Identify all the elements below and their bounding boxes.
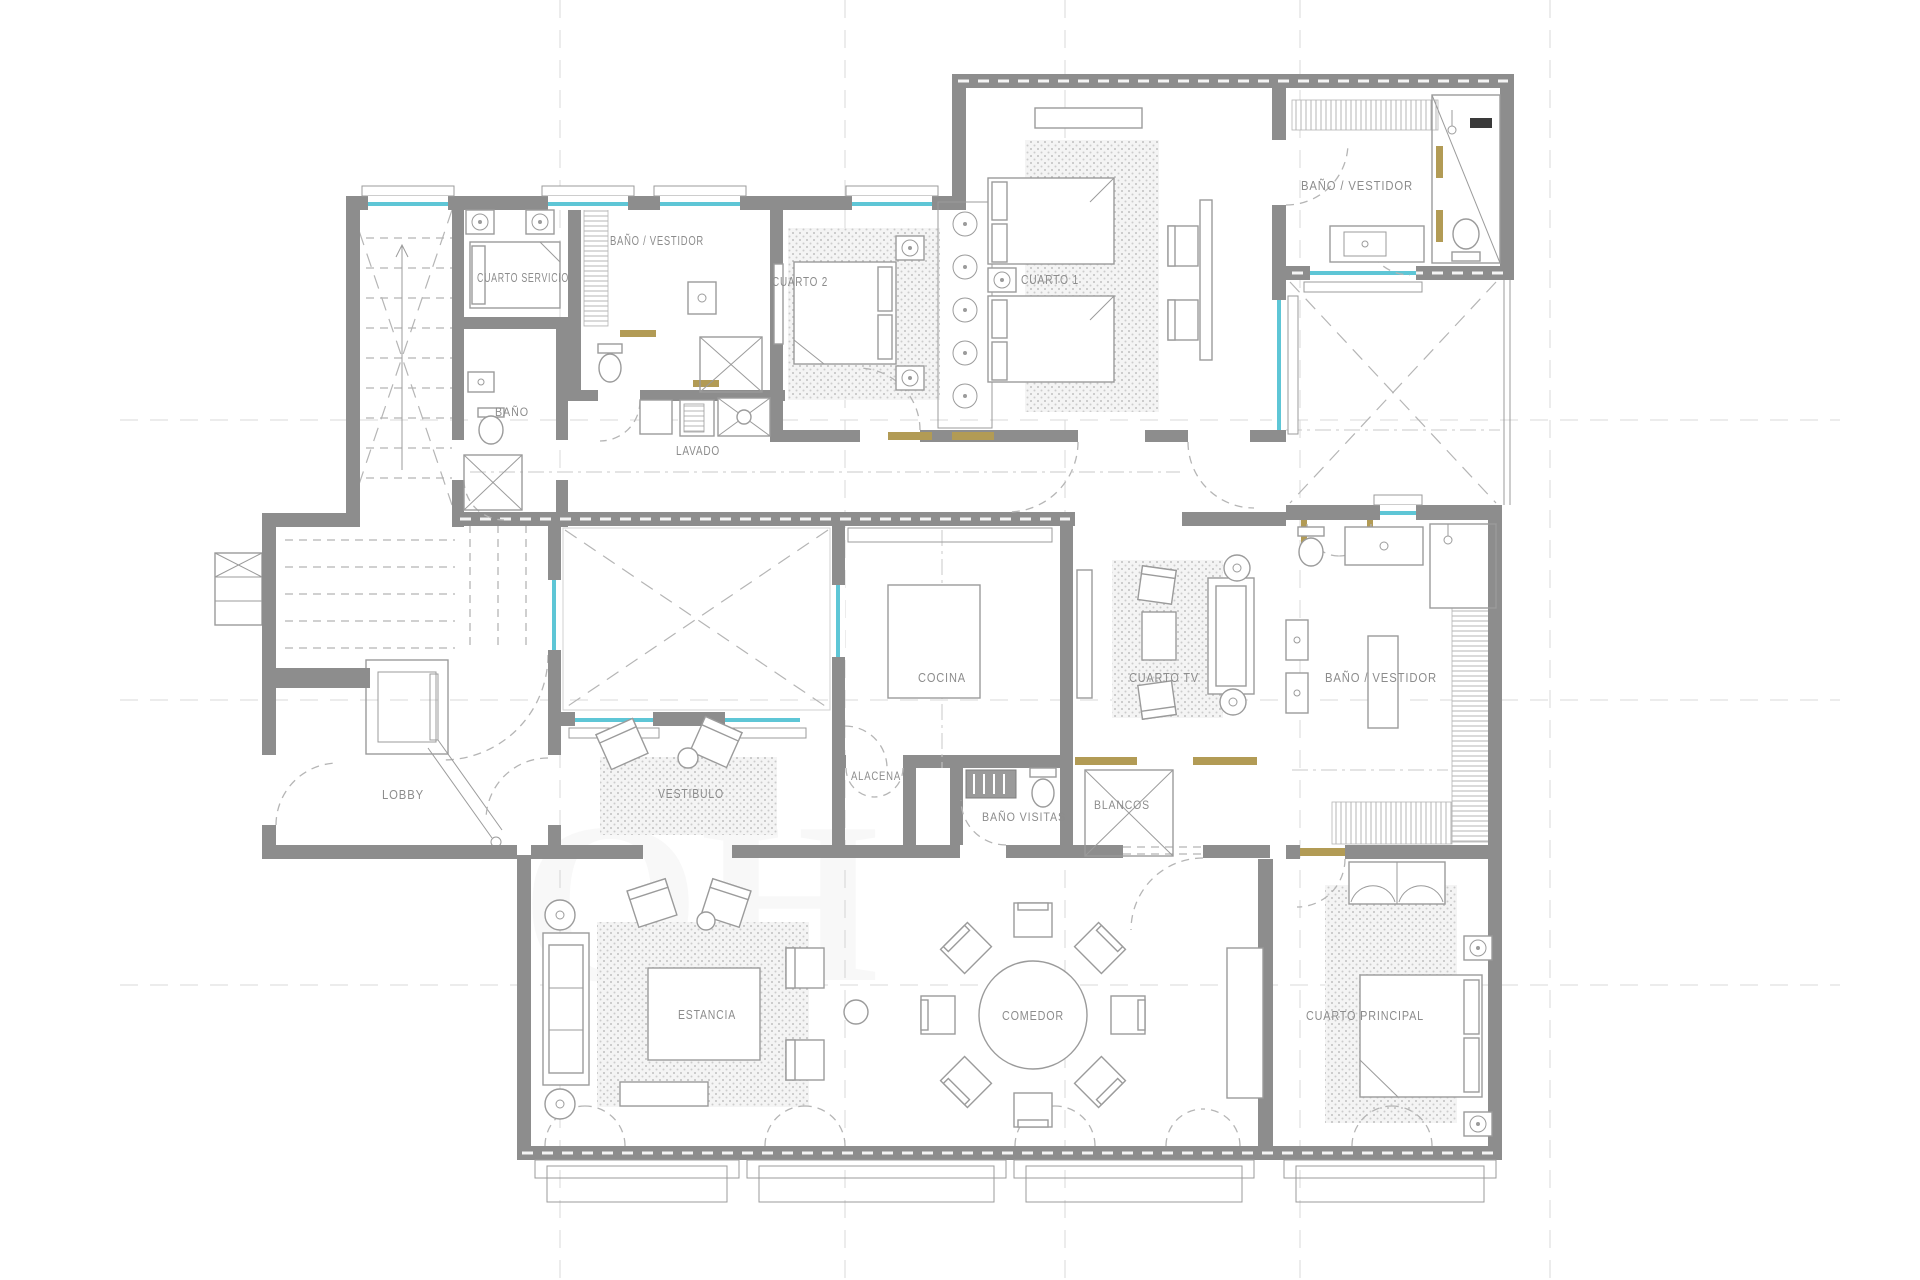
room-label-bano-visitas: BAÑO VISITAS: [982, 810, 1066, 824]
window: [846, 186, 938, 210]
nightstand-icon: [466, 210, 494, 234]
closet-hatch: [1332, 802, 1452, 844]
washstand-icon: [966, 770, 1016, 798]
sink-icon: [1286, 620, 1308, 660]
closet-hatch: [1292, 100, 1438, 130]
kitchen-counter: [848, 528, 1052, 542]
nightstand-icon: [988, 268, 1016, 292]
lightwell-cross: [563, 528, 830, 710]
window: [654, 186, 746, 210]
room-label-cuarto-1: CUARTO 1: [1021, 272, 1079, 287]
armchair-icon: [1168, 300, 1198, 340]
elevator-icon: [366, 660, 448, 754]
vanity-icon: [1345, 527, 1423, 565]
shower-icon: [1430, 524, 1496, 608]
console-icon: [1200, 200, 1212, 360]
floor-plan: OH UR: [0, 0, 1920, 1280]
credenza-icon: [1035, 108, 1142, 128]
window: [1374, 495, 1422, 520]
nightstand-icon: [1464, 936, 1492, 960]
toilet-icon: [1298, 527, 1324, 566]
terrace-steps: [535, 1160, 1496, 1202]
tv-console-icon: [1077, 570, 1092, 698]
room-label-bano-vestidor-right: BAÑO / VESTIDOR: [1325, 670, 1437, 685]
room-label-estancia: ESTANCIA: [678, 1007, 736, 1022]
side-table-icon: [697, 912, 715, 930]
terrace-cross: [1286, 280, 1510, 505]
room-label-cuarto-servicio: CUARTO SERVICIO: [477, 270, 569, 285]
toilet-icon: [1452, 219, 1480, 261]
window: [362, 186, 454, 210]
room-label-lobby: LOBBY: [382, 787, 424, 802]
room-label-bano-vestidor-top: BAÑO / VESTIDOR: [610, 233, 704, 248]
toilet-icon: [598, 344, 622, 382]
sink-icon: [468, 372, 494, 392]
media-console-icon: [620, 1082, 708, 1106]
armchair-icon: [786, 1040, 824, 1080]
washer-icon: [680, 400, 714, 436]
window: [1272, 296, 1298, 434]
bench-icon: [1349, 862, 1445, 904]
nightstand-icon: [526, 210, 554, 234]
armchair-icon: [1138, 681, 1176, 719]
nightstand-icon: [896, 236, 924, 260]
laundry-counter: [640, 400, 672, 434]
vanity-icon: [1330, 226, 1424, 262]
closet-hatch: [584, 208, 608, 326]
window: [542, 186, 634, 210]
bed-icon: [988, 178, 1114, 264]
window: [832, 585, 845, 657]
room-label-vestibulo: VESTIBULO: [658, 786, 724, 801]
toilet-icon: [1030, 768, 1056, 807]
luggage-closet: [215, 553, 262, 625]
cabinet-icon: [1227, 948, 1263, 1098]
room-label-comedor: COMEDOR: [1002, 1008, 1064, 1023]
room-label-cocina: COCINA: [918, 670, 966, 685]
armchair-icon: [1138, 566, 1176, 604]
speaker-icon: [545, 1089, 575, 1119]
window: [1304, 266, 1422, 292]
sofa-icon: [1208, 578, 1254, 694]
side-table-icon: [678, 748, 698, 768]
room-label-cuarto-tv: CUARTO TV: [1129, 670, 1199, 685]
linen-closet-icon: [1085, 770, 1173, 856]
side-table-icon: [1142, 612, 1176, 660]
room-label-cuarto-2: CUARTO 2: [772, 274, 828, 289]
room-label-bano-servicio: BAÑO: [495, 405, 529, 419]
room-label-alacena: ALACENA: [851, 769, 901, 783]
pouf-icon: [844, 1000, 868, 1024]
closet-hatch: [1452, 608, 1490, 842]
pouf-icon: [1224, 555, 1250, 581]
bed-icon: [1360, 975, 1482, 1097]
sink-icon: [1286, 673, 1308, 713]
nightstand-icon: [896, 366, 924, 390]
shower-icon: [464, 455, 522, 510]
armchair-icon: [786, 948, 824, 988]
window: [548, 580, 561, 650]
floor-plan-page: OH UR: [0, 0, 1920, 1280]
room-label-bano-vestidor-top-right: BAÑO / VESTIDOR: [1301, 178, 1413, 193]
speaker-icon: [545, 900, 575, 930]
room-label-cuarto-principal: CUARTO PRINCIPAL: [1306, 1008, 1424, 1023]
room-label-lavado: LAVADO: [676, 443, 720, 458]
armchair-icon: [1168, 226, 1198, 266]
pouf-icon: [1220, 689, 1246, 715]
sofa-icon: [543, 933, 589, 1085]
nightstand-icon: [1464, 1112, 1492, 1136]
laundry-sink-icon: [718, 398, 770, 436]
closet-hangers: [938, 202, 992, 428]
room-label-blancos: BLANCOS: [1094, 798, 1150, 812]
bed-icon: [988, 296, 1114, 382]
sink-icon: [688, 282, 716, 314]
shower-icon: [700, 337, 762, 392]
stairwell-top-left: [352, 210, 452, 505]
